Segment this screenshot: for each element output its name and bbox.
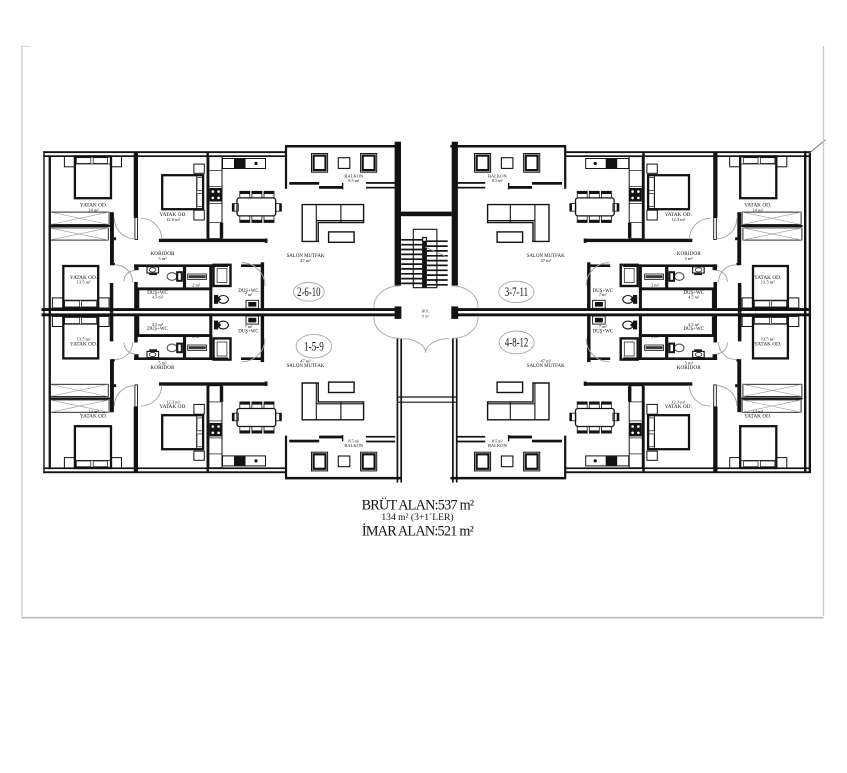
svg-text:13.5 m²: 13.5 m² — [761, 280, 776, 285]
svg-text:1-5-9: 1-5-9 — [304, 339, 324, 353]
svg-text:SALON MUTFAK: SALON MUTFAK — [287, 364, 325, 369]
svg-text:7 m²: 7 m² — [599, 324, 608, 329]
svg-text:DUŞ+WC: DUŞ+WC — [147, 327, 167, 332]
svg-text:14 m²: 14 m² — [88, 208, 99, 213]
svg-text:8.5 m²: 8.5 m² — [348, 438, 360, 443]
svg-text:4.5 m²: 4.5 m² — [688, 295, 700, 300]
svg-text:2 m²: 2 m² — [192, 282, 201, 287]
svg-text:14 m²: 14 m² — [752, 208, 763, 213]
svg-text:9 m²: 9 m² — [422, 315, 430, 319]
svg-text:YATAK OD.: YATAK OD. — [159, 404, 186, 410]
svg-text:HOL: HOL — [422, 309, 431, 313]
svg-text:2-6-10: 2-6-10 — [297, 285, 320, 299]
svg-text:5 m²: 5 m² — [685, 361, 694, 366]
svg-text:YATAK OD.: YATAK OD. — [80, 414, 107, 420]
svg-text:DUŞ+WC: DUŞ+WC — [238, 330, 258, 335]
svg-text:4.5 m²: 4.5 m² — [152, 322, 164, 327]
svg-text:8.5 m²: 8.5 m² — [492, 178, 504, 183]
svg-text:BALKON: BALKON — [344, 443, 363, 448]
svg-text:7 m²: 7 m² — [244, 324, 253, 329]
svg-text:134 m² (3+1´LER): 134 m² (3+1´LER) — [381, 512, 453, 523]
svg-text:12.3 m²: 12.3 m² — [671, 217, 686, 222]
svg-text:47 m²: 47 m² — [540, 258, 551, 263]
svg-text:12.0 m²: 12.0 m² — [166, 217, 181, 222]
svg-text:KORIDOR: KORIDOR — [677, 365, 702, 371]
svg-text:4.5 m²: 4.5 m² — [152, 295, 164, 300]
svg-text:8.5 m²: 8.5 m² — [348, 178, 360, 183]
svg-text:13.5 m²: 13.5 m² — [77, 337, 92, 342]
svg-text:5 m²: 5 m² — [158, 361, 167, 366]
svg-text:2 m²: 2 m² — [651, 334, 660, 339]
svg-text:14 m²: 14 m² — [752, 409, 763, 414]
svg-text:YATAK OD.: YATAK OD. — [70, 342, 97, 348]
svg-text:4-8-12: 4-8-12 — [505, 336, 528, 350]
svg-text:4.5 m²: 4.5 m² — [688, 322, 700, 327]
svg-text:13.5 m²: 13.5 m² — [761, 337, 776, 342]
svg-text:47 m²: 47 m² — [540, 358, 551, 363]
svg-text:12.3 m²: 12.3 m² — [166, 399, 181, 404]
svg-text:BRÜT ALAN:537 m²: BRÜT ALAN:537 m² — [362, 496, 474, 513]
svg-text:2 m²: 2 m² — [651, 282, 660, 287]
svg-text:8.5 m²: 8.5 m² — [492, 438, 504, 443]
svg-text:YATAK OD.: YATAK OD. — [665, 404, 692, 410]
svg-text:DUŞ+WC: DUŞ+WC — [593, 330, 613, 335]
svg-text:2 m²: 2 m² — [192, 334, 201, 339]
svg-text:14 m²: 14 m² — [88, 409, 99, 414]
svg-text:YATAK OD.: YATAK OD. — [754, 342, 781, 348]
svg-text:13.5 m²: 13.5 m² — [77, 280, 92, 285]
svg-text:7 m²: 7 m² — [599, 292, 608, 297]
svg-text:47 m²: 47 m² — [300, 258, 311, 263]
svg-text:İMAR ALAN:521 m²: İMAR ALAN:521 m² — [362, 524, 474, 540]
svg-text:BALKON: BALKON — [488, 443, 507, 448]
svg-text:7 m²: 7 m² — [244, 292, 253, 297]
svg-text:5 m²: 5 m² — [158, 256, 167, 261]
svg-text:SALON MUTFAK: SALON MUTFAK — [527, 364, 565, 369]
svg-text:KORIDOR: KORIDOR — [150, 365, 175, 371]
svg-text:3-7-11: 3-7-11 — [505, 285, 528, 299]
svg-text:YATAK OD.: YATAK OD. — [744, 414, 771, 420]
svg-text:5 m²: 5 m² — [685, 256, 694, 261]
svg-text:47 m²: 47 m² — [300, 358, 311, 363]
svg-text:12.3 m²: 12.3 m² — [671, 399, 686, 404]
svg-text:DUŞ+WC: DUŞ+WC — [683, 327, 703, 332]
